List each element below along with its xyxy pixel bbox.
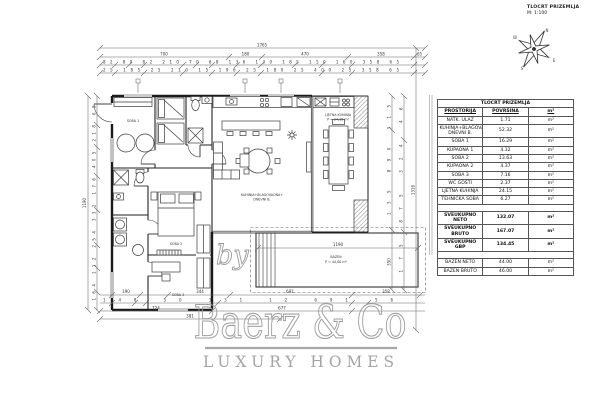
label-ljetna-area: P = 24,15 m²: [327, 118, 350, 122]
drawing-sheet: 1765 700 180 470 358 65 82 80 82 210 70 …: [0, 0, 600, 400]
label-soba1: SOBA 1: [127, 119, 139, 123]
toilet: [191, 97, 200, 111]
svg-text:175 875 324 46: 175 875 324 46: [399, 107, 404, 272]
table-row: KUHINJA+BLAGOVAONA+ DNEVNI B.52.32m²: [438, 124, 574, 138]
table-row-pool: BAZEN NETO44.00m²: [438, 259, 574, 267]
col-area: POVRŠINA: [483, 108, 528, 116]
pillar-bottom: [354, 200, 368, 232]
dryer: [114, 233, 127, 246]
label-soba3: SOBA 3: [172, 293, 184, 297]
table-row: TEHNIČKA SOBA6.27m²: [438, 196, 574, 204]
drawing-scale: M: 1:100: [527, 11, 579, 17]
compass-east: E: [553, 58, 556, 63]
table-row-total: SVEUKUPNO BRUTO167.07m²: [438, 225, 574, 239]
svg-text:180: 180: [242, 52, 250, 57]
table-row: KUPAONA 14.32m²: [438, 146, 574, 154]
label-bazen-area: P = 44,00 m²: [325, 260, 348, 264]
svg-text:1190: 1190: [82, 197, 87, 208]
label-ljetna: LJETNA KUHINJA: [325, 113, 352, 117]
wardrobe-3: [197, 258, 210, 288]
compass-west: W: [513, 35, 517, 40]
label-living-2: DNEVNI B.: [253, 198, 270, 202]
svg-text:65: 65: [417, 52, 423, 57]
compass-south: S: [521, 66, 524, 71]
twin-bed-2: [157, 123, 184, 144]
col-unit: m²: [528, 108, 573, 116]
table-row: NATK. ULAZ1.71m²: [438, 116, 574, 124]
summer-kitchen-counter: [313, 97, 354, 108]
svg-text:25 185 25 210 15 196 25 180 25: 25 185 25 210 15 196 25 180 25 400 25 35…: [103, 68, 399, 73]
table-row-pool: BAZEN BRUTO46.00m²: [438, 267, 574, 275]
sink: [202, 97, 212, 104]
plant: [287, 130, 297, 140]
area-table: TLOCRT PRIZEMLJA PROSTORIJA POVRŠINA m² …: [437, 99, 574, 276]
table-title: TLOCRT PRIZEMLJA: [438, 100, 574, 108]
label-bazen: BAZEN: [330, 255, 342, 259]
pillar-top: [354, 96, 368, 128]
watermark-brand: Baerz & Co: [194, 295, 407, 349]
washer: [114, 218, 127, 231]
watermark-by: by: [216, 240, 249, 271]
toilet-2: [136, 170, 144, 184]
compass-rose: N S E W: [511, 25, 559, 73]
table-row: WC GOSTI2.37m²: [438, 179, 574, 187]
watermark-tagline: LUXURY HOMES: [203, 353, 399, 371]
title-block: TLOCRT PRIZEMLJA M: 1:100: [527, 5, 579, 17]
double-bed: [151, 192, 201, 236]
shower-2: [114, 170, 129, 185]
svg-text:724: 724: [152, 306, 160, 311]
desk: [152, 262, 180, 281]
tv-cabinet: [307, 142, 312, 172]
svg-text:135 890 315: 135 890 315: [387, 105, 392, 215]
table-row: SOBA 37.16m²: [438, 171, 574, 179]
svg-text:1316: 1316: [411, 184, 416, 195]
label-soba2: SOBA 2: [170, 242, 182, 246]
kitchen-counter: [213, 97, 311, 108]
dim-top-total: 1765: [257, 43, 268, 48]
twin-bed-1: [157, 98, 184, 119]
svg-text:470: 470: [301, 52, 309, 57]
label-living-1: KUHINJA+BLAGOVAONA+: [241, 193, 283, 197]
col-room: PROSTORIJA: [438, 108, 483, 116]
outdoor-table: [324, 120, 354, 191]
table-row-total: SVEUKUPNO GBP134.45m²: [438, 238, 574, 252]
shower: [188, 128, 203, 143]
boiler: [133, 245, 144, 256]
axis-markers: [136, 79, 342, 93]
pool-width-dim: 1190: [333, 242, 344, 247]
wardrobe: [114, 98, 152, 107]
sink-2: [114, 193, 124, 200]
wardrobe-2: [197, 225, 210, 253]
watermark: Baerz & Co LUXURY HOMES: [185, 285, 425, 400]
svg-text:358: 358: [377, 52, 385, 57]
table-row-total: SVEUKUPNO NETO132.07m²: [438, 211, 574, 225]
round-chairs: [117, 134, 154, 152]
svg-text:164 112 254 332 176 405 218 65: 164 112 254 332 176 405 218 65: [92, 105, 97, 300]
svg-text:700: 700: [160, 52, 168, 57]
radiator: [157, 250, 181, 255]
table-row: KUPAONA 24.37m²: [438, 163, 574, 171]
compass-north: N: [546, 28, 549, 33]
table-row: SOBA 116.29m²: [438, 138, 574, 146]
pool-height-dim: 350: [387, 258, 392, 266]
table-row: LJETNA KUHINJA24.15m²: [438, 188, 574, 196]
svg-text:190: 190: [122, 289, 130, 294]
table-row: SOBA 213.63m²: [438, 154, 574, 162]
kitchen-island: [222, 121, 280, 136]
